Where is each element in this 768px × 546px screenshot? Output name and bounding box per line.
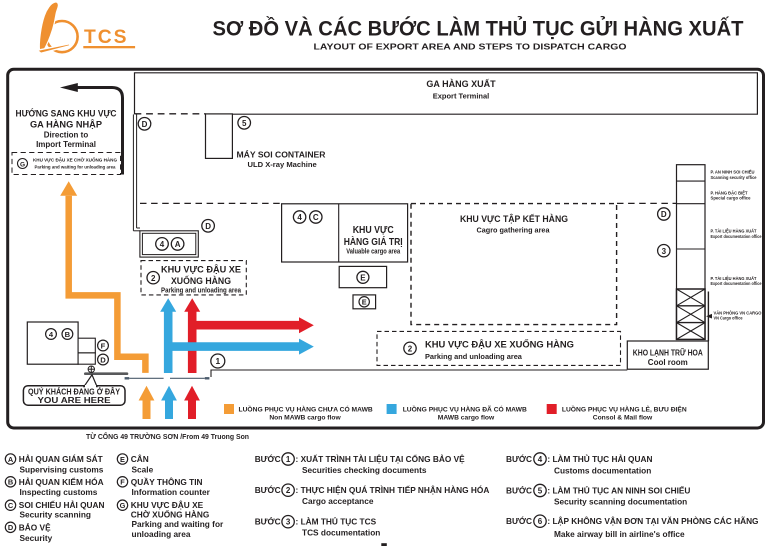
svg-text:F: F — [120, 478, 125, 487]
svg-text:B: B — [8, 478, 13, 487]
svg-text:D: D — [100, 355, 106, 364]
svg-text:SƠ ĐỒ VÀ CÁC BƯỚC LÀM THỦ TỤC: SƠ ĐỒ VÀ CÁC BƯỚC LÀM THỦ TỤC GỬI HÀNG X… — [213, 17, 744, 41]
svg-text:KHU VỰC ĐẬU XE XUỐNG HÀNG: KHU VỰC ĐẬU XE XUỐNG HÀNG — [425, 339, 574, 350]
svg-text:VĂN PHÒNG VN CARGO: VĂN PHÒNG VN CARGO — [714, 310, 763, 315]
svg-text:D: D — [8, 523, 14, 532]
svg-text:HƯỚNG SANG KHU VỰC: HƯỚNG SANG KHU VỰC — [16, 108, 117, 120]
svg-text:G: G — [20, 161, 25, 168]
svg-text:E: E — [362, 298, 367, 307]
svg-text:3: 3 — [286, 518, 291, 527]
svg-text:C: C — [8, 501, 14, 510]
svg-text:3: 3 — [662, 247, 667, 256]
svg-text:HẢI QUAN KIỂM HÓA: HẢI QUAN KIỂM HÓA — [19, 476, 104, 487]
svg-text:KHU VỰC ĐẬU XE CHỜ XUỐNG HÀNG: KHU VỰC ĐẬU XE CHỜ XUỐNG HÀNG — [33, 158, 118, 163]
svg-text:Import Terminal: Import Terminal — [36, 140, 96, 149]
svg-text:KHU VỰC: KHU VỰC — [353, 225, 394, 236]
svg-text:P. AN NINH SOI CHIẾU: P. AN NINH SOI CHIẾU — [711, 170, 755, 175]
svg-text:5: 5 — [538, 487, 543, 496]
svg-text:F: F — [101, 341, 106, 350]
svg-text:BƯỚC: BƯỚC — [255, 516, 281, 527]
svg-text:Parking and unloading area: Parking and unloading area — [161, 288, 241, 295]
svg-text:E: E — [360, 273, 366, 282]
svg-text:P. TÀI LIỆU HÀNG XUẤT: P. TÀI LIỆU HÀNG XUẤT — [711, 276, 757, 281]
svg-text:KHU VỰC ĐẬU XE: KHU VỰC ĐẬU XE — [161, 264, 241, 275]
svg-text:VN Cargo office: VN Cargo office — [714, 316, 744, 321]
svg-text:Parking and waiting for unload: Parking and waiting for unloading area — [35, 165, 117, 170]
svg-text:BƯỚC: BƯỚC — [255, 453, 281, 464]
svg-text:1: 1 — [215, 356, 220, 366]
svg-text:KHO LẠNH TRỮ HOA: KHO LẠNH TRỮ HOA — [633, 348, 703, 358]
svg-text:Valuable cargo area: Valuable cargo area — [346, 246, 401, 255]
svg-text:ULD X-ray Machine: ULD X-ray Machine — [248, 160, 317, 169]
svg-text:CÂN: CÂN — [131, 453, 149, 464]
svg-text:1: 1 — [286, 455, 291, 464]
svg-text:5: 5 — [242, 119, 247, 128]
svg-text:: THỰC HIỆN QUÁ TRÌNH TIẾP NHẬ: : THỰC HIỆN QUÁ TRÌNH TIẾP NHẬN HÀNG HÓA — [296, 484, 490, 495]
svg-text:A: A — [175, 240, 181, 249]
svg-text:HẢI QUAN GIÁM SÁT: HẢI QUAN GIÁM SÁT — [19, 453, 103, 464]
svg-text:P. HÀNG ĐẶC BIỆT: P. HÀNG ĐẶC BIỆT — [711, 190, 748, 195]
svg-text:MÁY SOI CONTAINER: MÁY SOI CONTAINER — [237, 150, 327, 160]
svg-text:Scanning security office: Scanning security office — [711, 175, 758, 180]
svg-text:LAYOUT OF EXPORT AREA AND STEP: LAYOUT OF EXPORT AREA AND STEPS TO DISPA… — [314, 42, 628, 52]
svg-text:Non MAWB cargo flow: Non MAWB cargo flow — [269, 414, 341, 421]
svg-text:Export documentation office: Export documentation office — [711, 281, 763, 286]
svg-text:4: 4 — [538, 455, 543, 464]
svg-text:GA HÀNG NHẬP: GA HÀNG NHẬP — [30, 119, 103, 131]
svg-text:KHU VỰC TẬP KẾT HÀNG: KHU VỰC TẬP KẾT HÀNG — [460, 213, 568, 225]
svg-text:Security: Security — [20, 533, 53, 543]
svg-text:2: 2 — [408, 345, 413, 354]
svg-text:: LÀM THỦ TỤC AN NINH SOI CHIẾ: : LÀM THỦ TỤC AN NINH SOI CHIẾU — [547, 485, 690, 496]
svg-text:Inspecting customs: Inspecting customs — [20, 487, 98, 497]
svg-text:: LÀM THỦ TỤC TCS: : LÀM THỦ TỤC TCS — [296, 516, 377, 527]
svg-text:BẢO VỆ: BẢO VỆ — [19, 521, 51, 532]
svg-text:: LẬP KHÔNG VẬN ĐƠN TẠI VĂN PH: : LẬP KHÔNG VẬN ĐƠN TẠI VĂN PHÒNG CÁC HÃ… — [547, 515, 758, 526]
svg-text:TCS documentation: TCS documentation — [302, 528, 380, 538]
svg-text:A: A — [8, 455, 14, 464]
svg-text:BƯỚC: BƯỚC — [506, 453, 532, 464]
svg-text:Information counter: Information counter — [132, 487, 211, 497]
svg-text:QUÝ KHÁCH ĐANG Ở ĐÂY: QUÝ KHÁCH ĐANG Ở ĐÂY — [28, 387, 121, 396]
svg-text:Cool room: Cool room — [648, 358, 688, 367]
svg-text:Security scanning documentatio: Security scanning documentation — [554, 497, 687, 507]
svg-text:Direction to: Direction to — [44, 131, 89, 140]
svg-text:: XUẤT TRÌNH TÀI LIỆU TẠI CỔNG: : XUẤT TRÌNH TÀI LIỆU TẠI CỔNG BẢO VỆ — [296, 453, 466, 464]
svg-text:D: D — [661, 210, 667, 219]
svg-text:Security scanning: Security scanning — [20, 509, 91, 519]
svg-text:TỪ CỔNG 49 TRƯỜNG SƠN /From 49: TỪ CỔNG 49 TRƯỜNG SƠN /From 49 Truong So… — [86, 432, 249, 441]
svg-text:B: B — [65, 330, 71, 339]
svg-text:TCS: TCS — [84, 26, 129, 48]
svg-text:Make airway bill in airline's: Make airway bill in airline's office — [554, 529, 685, 539]
svg-text:: LÀM THỦ TỤC HẢI QUAN: : LÀM THỦ TỤC HẢI QUAN — [547, 453, 652, 464]
svg-text:Cagro gathering area: Cagro gathering area — [477, 226, 551, 235]
svg-text:4: 4 — [297, 213, 302, 222]
svg-text:P. TÀI LIỆU HÀNG XUẤT: P. TÀI LIỆU HÀNG XUẤT — [711, 229, 757, 234]
svg-text:E: E — [120, 455, 125, 464]
svg-text:4: 4 — [160, 240, 165, 249]
svg-text:GA HÀNG XUẤT: GA HÀNG XUẤT — [426, 79, 496, 89]
svg-text:BƯỚC: BƯỚC — [506, 515, 532, 526]
svg-text:Parking and waiting for: Parking and waiting for — [132, 519, 225, 529]
svg-text:Parking and unloading area: Parking and unloading area — [425, 352, 523, 361]
svg-text:G: G — [120, 501, 126, 510]
svg-text:QUẦY THÔNG TIN: QUẦY THÔNG TIN — [131, 476, 203, 487]
svg-text:XUỐNG HÀNG: XUỐNG HÀNG — [171, 275, 231, 286]
svg-text:C: C — [313, 213, 319, 222]
svg-text:Customs documentation: Customs documentation — [554, 466, 651, 476]
svg-text:Scale: Scale — [132, 464, 154, 474]
svg-text:MAWB cargo flow: MAWB cargo flow — [438, 414, 495, 421]
svg-text:D: D — [142, 120, 148, 129]
svg-text:6: 6 — [538, 517, 543, 526]
svg-text:CHỜ XUỐNG HÀNG: CHỜ XUỐNG HÀNG — [131, 508, 210, 519]
svg-text:YOU ARE HERE: YOU ARE HERE — [38, 396, 112, 405]
svg-text:BƯỚC: BƯỚC — [255, 484, 281, 495]
svg-text:BƯỚC: BƯỚC — [506, 485, 532, 496]
svg-text:Securities checking documents: Securities checking documents — [302, 465, 427, 475]
svg-text:2: 2 — [286, 486, 291, 495]
svg-text:unloading area: unloading area — [132, 529, 191, 539]
svg-text:Supervising customs: Supervising customs — [20, 464, 104, 474]
svg-text:Export documentation office: Export documentation office — [711, 234, 763, 239]
svg-text:Cargo acceptance: Cargo acceptance — [302, 496, 374, 506]
svg-text:Special cargo office: Special cargo office — [711, 196, 752, 201]
svg-text:D: D — [205, 222, 211, 231]
svg-text:Consol & Mail flow: Consol & Mail flow — [593, 414, 653, 421]
svg-text:Export Terminal: Export Terminal — [433, 92, 490, 101]
svg-text:2: 2 — [151, 274, 156, 283]
